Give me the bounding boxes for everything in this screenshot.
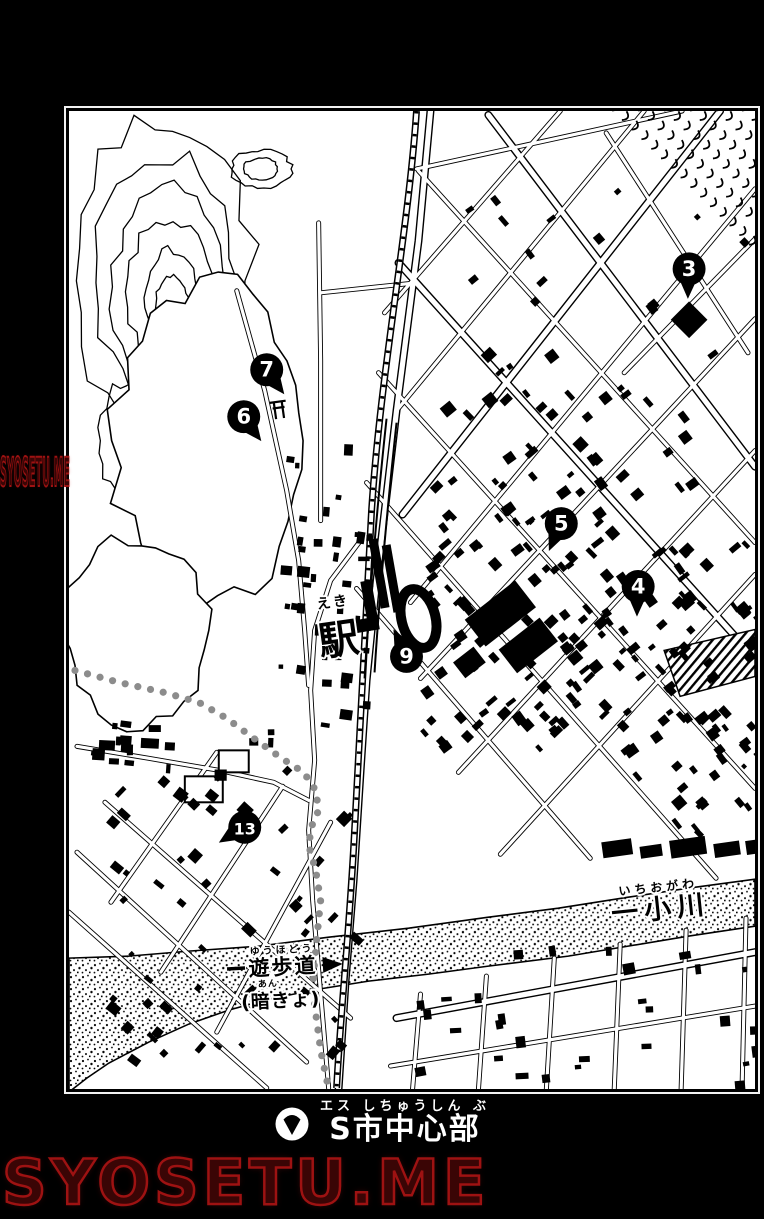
promenade-name: 遊歩道 bbox=[248, 953, 318, 981]
watermark-bottom: SYOSETU.ME bbox=[2, 1146, 489, 1219]
map-pin-4: 4 bbox=[622, 570, 655, 617]
map-pin-13: 13 bbox=[214, 811, 261, 848]
map-pin-down-icon bbox=[274, 1106, 310, 1142]
station-label: えき 駅 bbox=[313, 592, 362, 666]
manga-map-page: { "page": {"background": "#000000", "pan… bbox=[0, 0, 764, 1200]
city-map-panel: 37654913 えき 駅 いちおがわ 一小川 ゆうほどう 遊歩道 あん (暗き… bbox=[66, 108, 758, 1092]
pin-number: 5 bbox=[554, 512, 569, 536]
pin-number: 4 bbox=[631, 575, 646, 599]
pin-number: 3 bbox=[682, 257, 697, 281]
map-caption: エス しちゅうしん ぶ S市中心部 bbox=[0, 1100, 764, 1148]
culvert-furigana: あん bbox=[258, 978, 278, 990]
pin-number: 13 bbox=[234, 819, 256, 838]
coast-hatch-marks bbox=[612, 111, 755, 256]
pin-number: 9 bbox=[399, 644, 414, 668]
station-kanji: 駅 bbox=[316, 615, 362, 666]
station-furigana: えき bbox=[316, 592, 351, 613]
caption-title: S市中心部 bbox=[329, 1113, 481, 1148]
culvert-name: (暗きょ) bbox=[241, 987, 321, 1014]
watermark-left: SYOSETU.ME bbox=[0, 450, 70, 496]
city-map: 37654913 えき 駅 いちおがわ 一小川 ゆうほどう 遊歩道 あん (暗き… bbox=[69, 111, 755, 1089]
pin-number: 7 bbox=[259, 358, 274, 382]
lake-shoreline bbox=[69, 272, 303, 732]
pin-number: 6 bbox=[236, 405, 251, 429]
